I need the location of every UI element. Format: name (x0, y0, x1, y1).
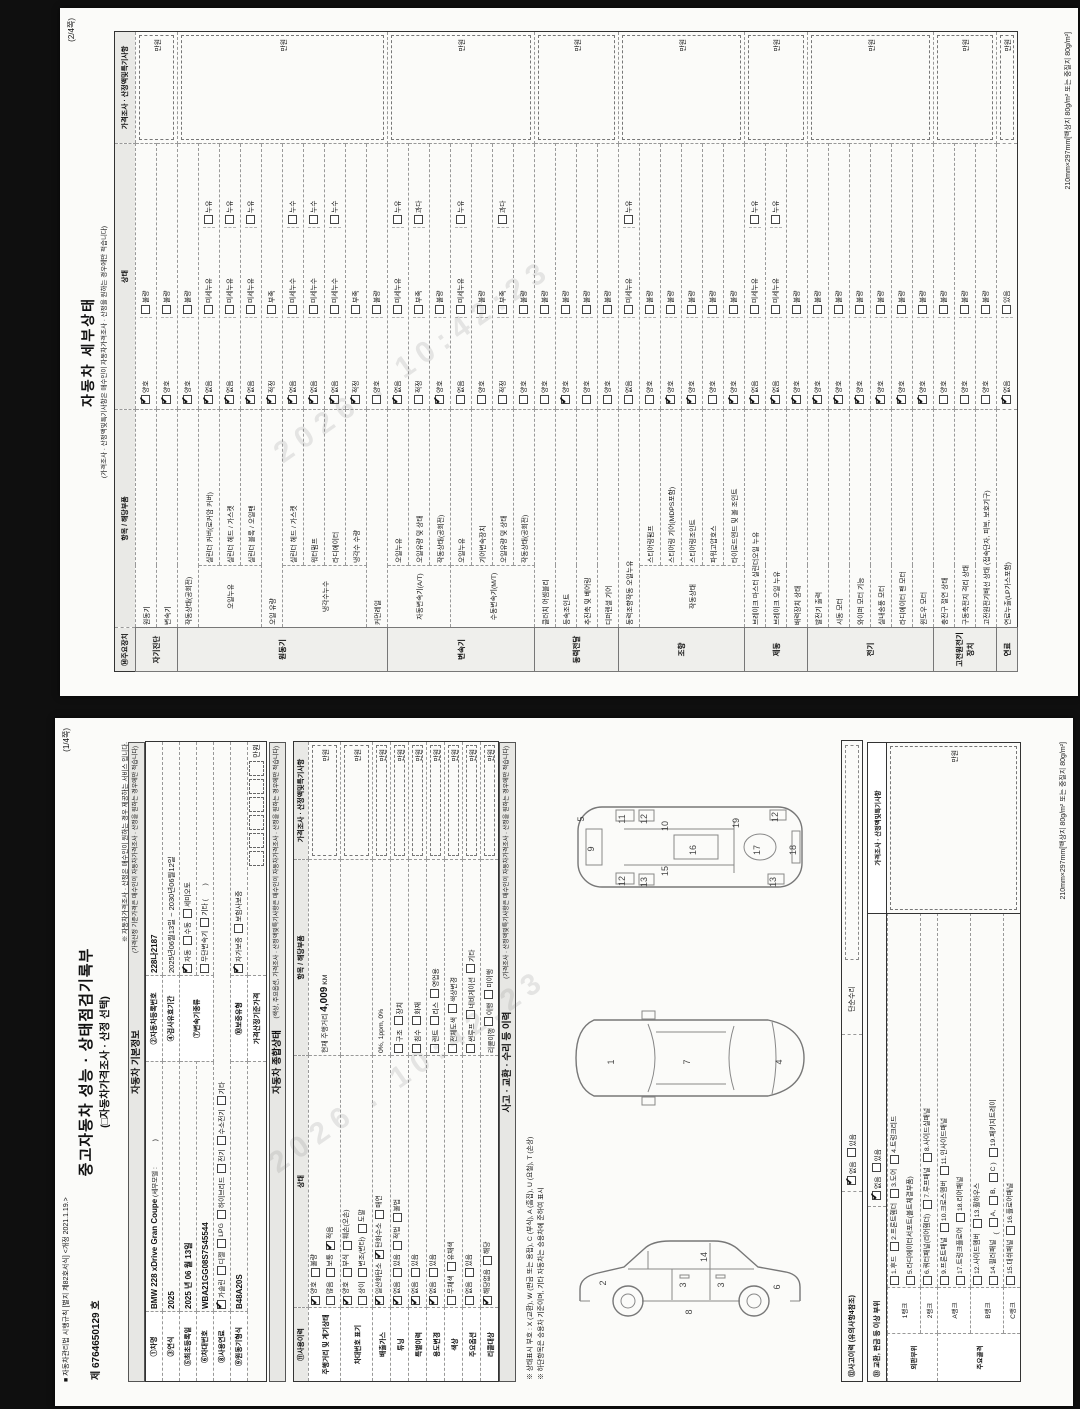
overall-row: 특별이력없음있음침수화재만원 (409, 742, 427, 1382)
svg-text:4: 4 (774, 1060, 784, 1065)
price-digit-box (249, 833, 264, 848)
option: 미세누유 (392, 278, 402, 314)
option: 양호 (581, 380, 591, 404)
page-1-wrap: ■ 자동차관리법 시행규칙 [별지 제82호서식] <개정 2021.1.19.… (55, 718, 1075, 1406)
overall-row: 색상무채색유채색전체도색색상변경만원 (445, 742, 463, 1382)
option: 양호 (161, 380, 171, 404)
option: 양호 (518, 380, 528, 404)
detail-state-table: ⑭주요장치항목 / 해당부품상태가격조사 · 산정액및특기사항자기진단원동기양호… (114, 31, 1018, 672)
checkbox (624, 305, 633, 314)
option: 양호 (476, 380, 486, 404)
section-overall-state: 자동차 종합상태 (색상, 주요옵션, 가격조사 · 산정액및특기사항은 매수인… (269, 742, 286, 1382)
checkbox-checked (375, 1296, 384, 1305)
price-cell: 만원 (373, 742, 391, 860)
option: 전체도색 (448, 1017, 458, 1053)
document-title: 중고자동차 성능 · 상태점검기록부 (75, 742, 96, 1382)
option: 양호 (182, 380, 192, 404)
overall-row: 리콜대상해당없음해당리콜이행 이행미이행만원 (481, 742, 499, 1382)
checkbox (540, 395, 549, 404)
checkbox (448, 1044, 457, 1053)
history-notes: ※ 상태표시 부호 : X (교환), W (판금 또는 용접), C (부식)… (525, 1137, 547, 1380)
checkbox (923, 1276, 932, 1285)
car-diagrams: 2331486 174 59111212131015161917121318 (547, 742, 833, 1382)
overall-row: 주행거리 및 계기상태양호불량많음보통적음현재 주행거리 4,009 KM만원 (309, 742, 341, 1382)
option: 누수 (329, 200, 339, 224)
option: 불량 (602, 290, 612, 314)
checkbox-checked (393, 1296, 402, 1305)
option: 불법 (392, 1199, 404, 1223)
checkbox (217, 1239, 226, 1248)
checkbox-checked (1002, 395, 1011, 404)
svg-text:6: 6 (772, 1284, 782, 1289)
checkbox (204, 305, 213, 314)
price-cell: 만원 (745, 31, 808, 143)
checkbox (687, 305, 696, 314)
option: 해당 (482, 1241, 494, 1265)
checkbox (393, 1213, 402, 1222)
checkbox (729, 305, 738, 314)
document-number: 제 6764650129 호 (87, 1300, 102, 1380)
checkbox-checked (813, 395, 822, 404)
detail-row: 조향동력조향작동 오일누유없음미세누유누유만원 (619, 31, 640, 671)
page-2-wrap: (2/4쪽) 자동차 세부상태 (가격조사 · 산정액및특기사항은 매수인이 자… (60, 8, 1078, 696)
checkbox (939, 395, 948, 404)
checkbox (411, 1268, 420, 1277)
checkbox (890, 1155, 899, 1164)
option: 수소전기 (216, 1109, 226, 1145)
checkbox (414, 305, 423, 314)
price-cell: 만원 (341, 742, 373, 860)
option: 불량 (539, 290, 549, 314)
checkbox (394, 1044, 403, 1053)
checkbox-checked (872, 1191, 881, 1200)
option: 썬루프 (466, 1023, 476, 1053)
price-cell: 만원 (619, 31, 745, 143)
svg-text:10: 10 (660, 821, 670, 831)
option: 누유 (245, 200, 255, 224)
checkbox (645, 305, 654, 314)
checkbox (466, 1044, 475, 1053)
section-basic-info: 자동차 기본정보 (가격산정 기준가격은 매수인이 자동차가격조사 · 산정을 … (128, 742, 145, 1382)
checkbox (890, 1276, 899, 1285)
option: 불량 (518, 290, 528, 314)
option: 없음 (455, 380, 465, 404)
option: 누수 (308, 200, 318, 224)
price-cell: 만원 (309, 742, 341, 860)
title-block: 제 6764650129 호 중고자동차 성능 · 상태점검기록부 (□자동차가… (75, 742, 119, 1382)
svg-text:12: 12 (617, 876, 627, 886)
device-category: 원동기 (178, 628, 388, 672)
price-cell: 만원 (445, 742, 463, 860)
checkbox-checked (847, 1176, 856, 1185)
option: 탄화수소 (374, 1223, 386, 1259)
overall-row: 튜닝없음있음적법불법구조장치만원 (391, 742, 409, 1382)
checkbox (343, 1241, 352, 1250)
option: 19.패키지트레이 (987, 1099, 1000, 1157)
price-survey-cell: 만원 (887, 742, 1021, 914)
checkbox (855, 305, 864, 314)
option: 불량 (707, 290, 717, 314)
checkbox (217, 1136, 226, 1145)
option: 불량 (812, 290, 822, 314)
price-cell: 만원 (808, 31, 934, 143)
checkbox (141, 305, 150, 314)
checkbox (234, 924, 243, 933)
option: 기타 (466, 949, 476, 973)
checkbox (989, 1276, 998, 1285)
checkbox (372, 305, 381, 314)
option: 없음 (410, 1281, 422, 1305)
option: 양호 (875, 380, 885, 404)
checkbox (897, 305, 906, 314)
paper-spec-footer: 210mm×297mm[백상지 80g/m² 또는 중질지 80g/m²] (1058, 742, 1068, 900)
checkbox (624, 395, 633, 404)
svg-text:18: 18 (788, 845, 798, 855)
price-cell: 만원 (136, 31, 178, 143)
checkbox (603, 395, 612, 404)
price-cell: 만원 (934, 31, 997, 143)
option: 양호 (980, 380, 990, 404)
checkbox (465, 1268, 474, 1277)
option: 15.대쉬패널 (1004, 1240, 1017, 1285)
checkbox-checked (330, 395, 339, 404)
checkbox (956, 1276, 965, 1285)
checkbox (162, 305, 171, 314)
checkbox (792, 305, 801, 314)
checkbox (477, 395, 486, 404)
detail-row: 원동기작동상태(공회전)양호불량만원 (178, 31, 199, 671)
checkbox (540, 305, 549, 314)
option: 불량 (875, 290, 885, 314)
option: 상이 (357, 1281, 369, 1305)
checkbox (217, 1210, 226, 1219)
checkbox (939, 305, 948, 314)
price-cell: 만원 (409, 742, 427, 860)
option: 없음 (392, 380, 402, 404)
option: 불량 (182, 290, 192, 314)
svg-text:17: 17 (752, 845, 762, 855)
device-category: 전기 (808, 628, 934, 672)
checkbox (225, 305, 234, 314)
price-cell: 만원 (178, 31, 388, 143)
option: 불량 (371, 290, 381, 314)
option: 불량 (581, 290, 591, 314)
option: 양호 (833, 380, 843, 404)
checkbox (989, 1148, 998, 1157)
checkbox (225, 215, 234, 224)
option: 가솔린 (216, 1279, 226, 1309)
checkbox (483, 1256, 492, 1265)
checkbox (466, 964, 475, 973)
option: 없음 (203, 380, 213, 404)
checkbox (430, 989, 439, 998)
checkbox (484, 990, 493, 999)
device-category: 변속기 (388, 628, 535, 672)
device-category: 제동 (745, 628, 808, 672)
option: 양호 (959, 380, 969, 404)
option: C ) (987, 1162, 1000, 1182)
option: B, (987, 1187, 1000, 1204)
option: 불량 (896, 290, 906, 314)
option: 2.프론트휀더 (888, 1203, 901, 1251)
device-category: 조향 (619, 628, 745, 672)
option: 5.라디에이터서포트(볼트체결부품) (904, 1176, 917, 1285)
option: 양호 (140, 380, 150, 404)
checkbox (217, 1266, 226, 1275)
option: 누유 (224, 200, 234, 224)
option: 양호 (560, 380, 570, 404)
option: 양호 (938, 380, 948, 404)
option: 없음 (428, 1281, 440, 1305)
checkbox (477, 305, 486, 314)
option: 미세누유 (224, 278, 234, 314)
option: 있음 (428, 1254, 440, 1278)
svg-text:9: 9 (586, 847, 596, 852)
detail-row: 연료연료누출(LP가스포함)없음있음만원 (997, 31, 1018, 671)
option: 누유 (455, 200, 465, 224)
option: 수동 (182, 922, 192, 946)
option: 8.사이드실패널 (921, 1108, 934, 1162)
checkbox (973, 1276, 982, 1285)
checkbox-checked (267, 395, 276, 404)
checkbox (412, 1016, 421, 1025)
option: 없음 (245, 380, 255, 404)
option: 장치 (394, 1002, 404, 1026)
checkbox (561, 305, 570, 314)
checkbox-checked (687, 395, 696, 404)
price-cell: 만원 (997, 31, 1018, 143)
checkbox (956, 1213, 965, 1222)
option: 자동 (182, 949, 192, 973)
page-subtitle: (가격조사 · 산정액및특기사항은 매수인이 자동차가격조사 · 산정을 원하는… (98, 8, 108, 696)
option: 12.사이드멤버 (971, 1233, 984, 1285)
checkbox-checked (183, 395, 192, 404)
option: 4.트렁크리드 (888, 1116, 901, 1164)
page-number: (2/4쪽) (66, 18, 77, 42)
option: 7.루프패널 (921, 1167, 934, 1209)
option: 불량 (560, 290, 570, 314)
option: 9.프론트패널 (938, 1237, 951, 1285)
svg-text:14: 14 (699, 1252, 709, 1262)
car-underbody-diagram: 59111212131015161917121318 (563, 794, 817, 900)
checkbox-checked (771, 395, 780, 404)
checkbox (519, 305, 528, 314)
option: 3.도어 (888, 1169, 901, 1198)
option: 양호 (728, 380, 738, 404)
checkbox (330, 305, 339, 314)
option: 무채색 (446, 1275, 458, 1305)
option: 불량 (917, 290, 927, 314)
checkbox-checked (729, 395, 738, 404)
overall-row: 주요옵션없음있음썬루프네비게이션기타만원 (463, 742, 481, 1382)
checkbox (204, 215, 213, 224)
checkbox-checked (246, 395, 255, 404)
checkbox-checked (183, 964, 192, 973)
checkbox (989, 1218, 998, 1227)
option: 양호 (686, 380, 696, 404)
option: 누유 (623, 200, 633, 224)
checkbox (890, 1242, 899, 1251)
checkbox (918, 305, 927, 314)
checkbox (603, 305, 612, 314)
checkbox (429, 1268, 438, 1277)
option: 훼손(오손) (341, 1209, 353, 1250)
checkbox (447, 1262, 456, 1271)
svg-text:1: 1 (606, 1060, 616, 1065)
price-survey-header: 가격조사 · 산정액및특기사항 (867, 742, 887, 914)
option: 양호 (434, 380, 444, 404)
simple-repair-blank-cell (845, 745, 859, 960)
checkbox (412, 1044, 421, 1053)
checkbox (414, 395, 423, 404)
checkbox-checked (326, 1241, 335, 1250)
rank-row: B랭크12.사이드멤버13.휠하우스14.필러패널(A,B,C )19.패키지트… (971, 914, 1004, 1382)
option: 무단변속기 (199, 931, 209, 973)
option: 없음 (287, 380, 297, 404)
option: 누유 (392, 200, 402, 224)
option: 부족 (413, 290, 423, 314)
option: 적정 (266, 380, 276, 404)
option: 13.휠하우스 (971, 1183, 984, 1228)
checkbox (960, 305, 969, 314)
device-category: 자기진단 (136, 628, 178, 672)
option: 18.리어패널 (954, 1177, 967, 1222)
option: 없음 (392, 1281, 404, 1305)
option: 적음 (325, 1226, 337, 1250)
page-title: 자동차 세부상태 (78, 8, 98, 696)
checkbox (940, 1166, 949, 1175)
dark-viewer-background: (2/4쪽) 자동차 세부상태 (가격조사 · 산정액및특기사항은 매수인이 자… (0, 0, 1080, 1409)
checkbox (498, 305, 507, 314)
price-cell: 만원 (391, 742, 409, 860)
checkbox (447, 1296, 456, 1305)
detail-row: 변속기자동변속기(A/T)오일누유없음미세누유누유만원 (388, 31, 409, 671)
option: 있음 (1001, 290, 1011, 314)
option: 매연 (374, 1195, 386, 1219)
option: 기타 (216, 1082, 226, 1106)
option: 화재 (412, 1002, 422, 1026)
checkbox-checked (351, 395, 360, 404)
checkbox (430, 1044, 439, 1053)
checkbox (246, 305, 255, 314)
checkbox (394, 1016, 403, 1025)
checkbox (923, 1200, 932, 1209)
checkbox-checked (483, 1296, 492, 1305)
simple-repair-label: 단순수리 (842, 964, 862, 1035)
option: 도말 (357, 1209, 369, 1233)
checkbox (456, 305, 465, 314)
price-digit-box (249, 779, 264, 794)
checkbox (414, 215, 423, 224)
checkbox (771, 305, 780, 314)
option: 과다 (497, 200, 507, 224)
option: 미세누유 (749, 278, 759, 314)
checkbox (989, 1196, 998, 1205)
option: 세미오토 (182, 882, 192, 918)
checkbox (940, 1223, 949, 1232)
option: 양호 (309, 1281, 321, 1305)
checkbox (582, 395, 591, 404)
checkbox (217, 1096, 226, 1105)
option: 부족 (350, 290, 360, 314)
history-note-line: ※ 하단항목은 승용차 기준이며, 기타 자동차는 승용차에 준하여 표시 (536, 1137, 547, 1380)
option: 불량 (140, 290, 150, 314)
checkbox (393, 215, 402, 224)
checkbox (435, 305, 444, 314)
checkbox-checked (918, 395, 927, 404)
device-category: 동력전달 (535, 628, 619, 672)
checkbox (375, 1210, 384, 1219)
checkbox (393, 305, 402, 314)
option: 미세누수 (308, 278, 318, 314)
option: 색상변경 (448, 977, 458, 1013)
svg-text:3: 3 (716, 1282, 726, 1287)
checkbox (358, 1296, 367, 1305)
option: 미세누수 (287, 278, 297, 314)
accident-history-row: ⑫사고이력 (유의사항4참조) 없음있음 단순수리 (841, 740, 863, 1382)
checkbox (267, 305, 276, 314)
checkbox (519, 395, 528, 404)
checkbox (358, 1224, 367, 1233)
option: 양호 (644, 380, 654, 404)
option: 디젤 (216, 1252, 226, 1276)
option: 11.인사이드패널 (938, 1118, 951, 1175)
page-1-sheet: ■ 자동차관리법 시행규칙 [별지 제82호서식] <개정 2021.1.19.… (55, 718, 1073, 1406)
option: 부족 (266, 290, 276, 314)
checkbox (200, 964, 209, 973)
option: 미세누유 (245, 278, 255, 314)
checkbox (1006, 1226, 1015, 1235)
option: A, (987, 1210, 1000, 1227)
option: 네비게이션 (466, 977, 476, 1019)
checkbox (326, 1296, 335, 1305)
checkbox (645, 395, 654, 404)
checkbox (666, 305, 675, 314)
option: 양호 (539, 380, 549, 404)
checkbox (872, 1163, 881, 1172)
section-accident-history: 사고 · 교환 · 수리 등 이력 (가격조사 · 산정액및특기사항은 매수인이… (499, 742, 516, 1382)
option: 있음 (392, 1254, 404, 1278)
option: 16.플로어패널 (1004, 1183, 1017, 1235)
checkbox-checked (834, 395, 843, 404)
price-digit-box (249, 815, 264, 830)
checkbox (582, 305, 591, 314)
option: 미세누수 (329, 278, 339, 314)
checkbox (847, 1148, 856, 1157)
option: 있음 (464, 1254, 476, 1278)
checkbox (750, 305, 759, 314)
checkbox-checked (561, 395, 570, 404)
option: 불량 (833, 290, 843, 314)
checkbox-checked (204, 395, 213, 404)
option: 양호 (896, 380, 906, 404)
detail-row: 동력전달클러치 어셈블리양호불량만원 (535, 31, 556, 671)
rank-row: C랭크15.대쉬패널16.플로어패널 (1004, 914, 1021, 1382)
detail-row: 고전원전기장치충전구 절연 상태양호불량만원 (934, 31, 955, 671)
svg-text:12: 12 (639, 814, 649, 824)
paper-spec-footer: 210mm×297mm[백상지 80g/m² 또는 중질지 80g/m²] (1063, 32, 1073, 190)
option: 양호 (917, 380, 927, 404)
checkbox (448, 1004, 457, 1013)
option: 양호 (707, 380, 717, 404)
form-reference: ■ 자동차관리법 시행규칙 [별지 제82호서식] <개정 2021.1.19.… (61, 1197, 71, 1382)
price-cell: 만원 (427, 742, 445, 860)
checkbox-checked (429, 1296, 438, 1305)
exchange-panel-block: ⑬ 교환, 판금 등 이상 부위 없음있음 외판부위1랭크1.후드2.프론트휀더… (867, 742, 1021, 1382)
option: 이행 (484, 1003, 494, 1027)
option: 있음 (410, 1254, 422, 1278)
option: 양호 (791, 380, 801, 404)
